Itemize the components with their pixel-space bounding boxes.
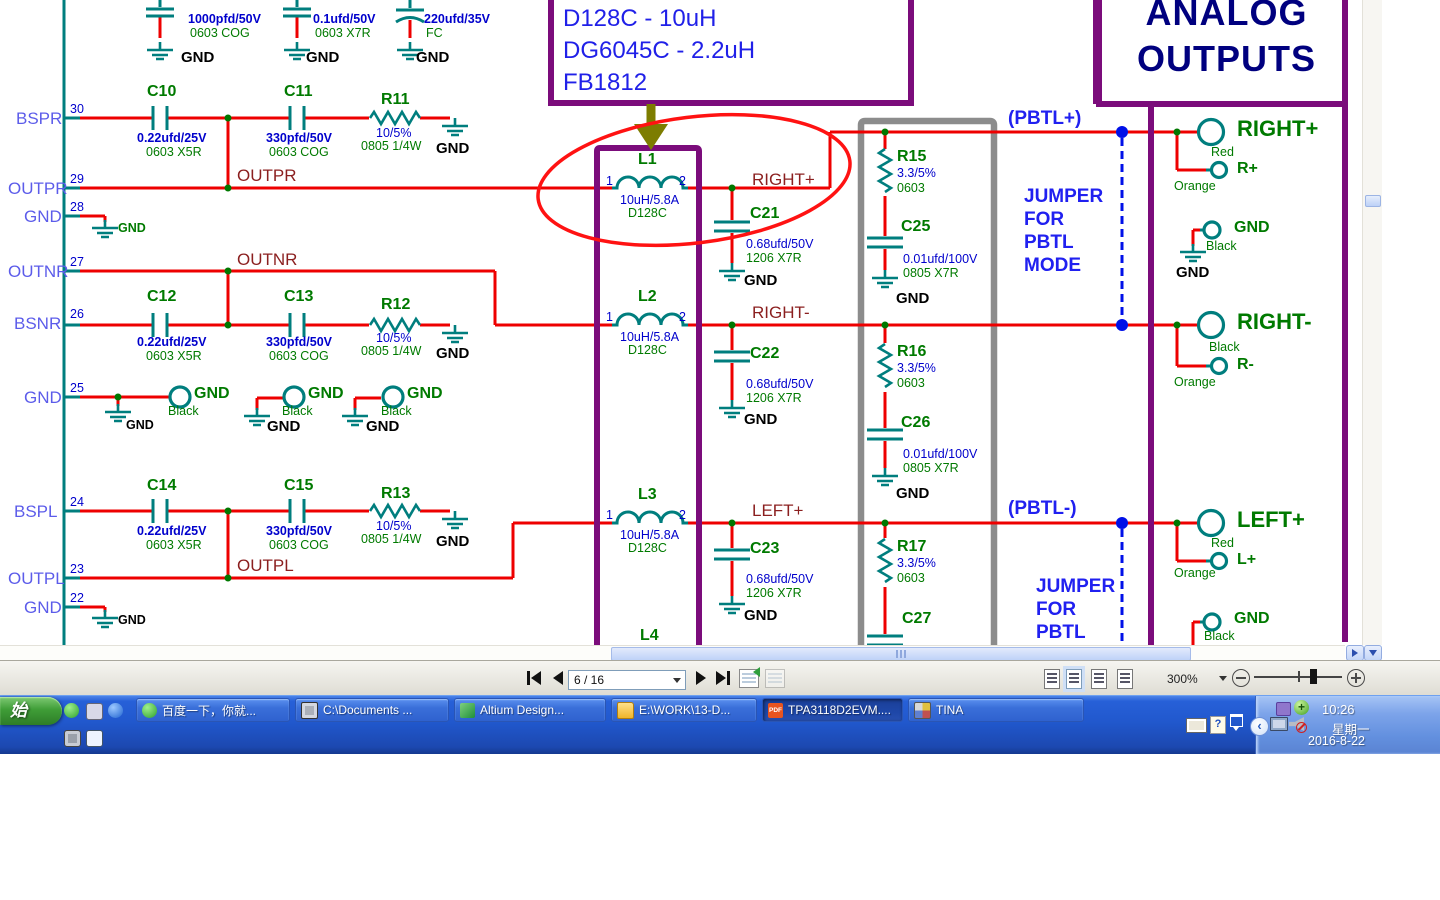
schematic-label: 0.22ufd/25V [137, 336, 206, 349]
snapshot-disabled-icon [765, 669, 785, 688]
schematic-label: D128C [628, 344, 667, 357]
schematic-label: 0603 [897, 572, 925, 585]
clock-time[interactable]: 10:26 [1322, 702, 1355, 717]
schematic-label: R11 [381, 92, 409, 109]
schematic-label: R12 [381, 297, 410, 314]
tray-green-plus-icon[interactable]: + [1294, 700, 1309, 715]
horizontal-scrollbar-thumb[interactable] [611, 647, 1191, 661]
taskbar-button[interactable]: Altium Design... [454, 698, 606, 722]
analog-outputs-box: ANALOG OUTPUTS [1096, 0, 1351, 104]
next-page-button[interactable] [692, 670, 710, 686]
schematic-label: R+ [1237, 161, 1258, 178]
schematic-label: GND [267, 419, 300, 435]
taskbar-button[interactable]: TINA [908, 698, 1084, 722]
previous-page-button[interactable] [549, 670, 567, 686]
schematic-label: JUMPER [1024, 187, 1103, 207]
schematic-label: 1206 X7R [746, 252, 802, 265]
taskbar-button-label: 百度一下，你就... [162, 702, 262, 719]
hide-icons-chevron-button[interactable]: ‹ [1250, 717, 1269, 736]
tray-app-icon[interactable] [1276, 702, 1291, 716]
zoom-slider-tick [1298, 671, 1300, 682]
schematic-label: GND [744, 608, 777, 624]
analog-outputs-title-line1: ANALOG [1146, 0, 1308, 36]
schematic-label: 1 [606, 311, 613, 324]
schematic-label: MODE [1024, 256, 1081, 276]
schematic-label: 0603 [897, 182, 925, 195]
taskbar-button[interactable]: 百度一下，你就... [136, 698, 290, 722]
scrollbar-grip [896, 650, 906, 658]
taskbar-button[interactable]: E:\WORK\13-D... [611, 698, 757, 722]
schematic-label: 0603 COG [269, 539, 329, 552]
schematic-label: D128C - 10uH [563, 6, 716, 31]
schematic-label: OUTNR [8, 263, 68, 281]
schematic-label: GND [194, 386, 230, 403]
tina-icon [914, 702, 931, 719]
schematic-label: C22 [750, 346, 779, 363]
schematic-label: Red [1211, 146, 1234, 159]
page-lines-icon [1120, 673, 1130, 684]
schematic-label: C26 [901, 415, 930, 432]
schematic-label: GND [744, 273, 777, 289]
language-bar-help-icon[interactable]: ? [1210, 716, 1226, 734]
schematic-label: R17 [897, 539, 926, 556]
schematic-label: 0.68ufd/50V [746, 378, 813, 391]
pbtl-dot [1116, 517, 1128, 529]
tray-network-monitor-icon[interactable] [1270, 717, 1288, 731]
schematic-label: 0.01ufd/100V [903, 253, 977, 266]
schematic-label: Orange [1174, 180, 1216, 193]
schematic-label: 0603 X5R [146, 146, 202, 159]
schematic-label: GND [1176, 265, 1209, 281]
zoom-dropdown-icon[interactable] [1219, 676, 1227, 681]
schematic-label: Black [1209, 341, 1240, 354]
taskbar: 始 百度一下，你就...C:\Documents ...Altium Desig… [0, 695, 1440, 754]
schematic-label: C21 [750, 206, 779, 223]
schematic-label: RIGHT- [1237, 310, 1312, 333]
schematic-label: 0805 1/4W [361, 345, 421, 358]
quicklaunch-chip-icon[interactable] [64, 730, 81, 747]
pdf-page: 1000pfd/50V0603 COGGND0.1ufd/50V0603 X7R… [0, 0, 1362, 645]
schematic-label: D128C [628, 207, 667, 220]
quicklaunch-ie-icon[interactable] [108, 703, 123, 718]
schematic-label: 0603 X7R [315, 27, 371, 40]
schematic-label: FC [426, 27, 443, 40]
schematic-label: PBTL [1024, 233, 1074, 253]
schematic-label: GND [118, 614, 146, 627]
page-lines-icon [1047, 673, 1057, 684]
schematic-label: 1 [606, 509, 613, 522]
zoom-slider-thumb[interactable] [1310, 669, 1317, 684]
schematic-label: OUTNR [237, 251, 297, 269]
schematic-label: (PBTL-) [1008, 499, 1077, 519]
continuous-facing-view-button[interactable] [1117, 669, 1133, 689]
taskbar-button[interactable]: C:\Documents ... [295, 698, 449, 722]
quicklaunch-calculator-icon[interactable] [86, 703, 103, 720]
schematic-label: 0.22ufd/25V [137, 132, 206, 145]
schematic-label: GND [407, 386, 443, 403]
schematic-label: GND [416, 50, 449, 66]
taskbar-button[interactable]: PDFTPA3118D2EVM.... [762, 698, 903, 722]
schematic-label: 3.3/5% [897, 167, 936, 180]
snapshot-rows [768, 673, 782, 683]
schematic-label: GND [24, 208, 62, 226]
schematic-label: LEFT+ [752, 502, 804, 520]
schematic-label: (PBTL+) [1008, 109, 1081, 129]
schematic-label: 25 [70, 382, 84, 395]
schematic-label: 0.01ufd/100V [903, 448, 977, 461]
single-page-view-button[interactable] [1044, 669, 1060, 689]
schematic-label: 330pfd/50V [266, 525, 332, 538]
schematic-label: BSPL [14, 503, 57, 521]
schematic-label: BSNR [14, 315, 61, 333]
schematic-label: GND [366, 419, 399, 435]
schematic-label: 0805 1/4W [361, 140, 421, 153]
schematic-label: 2 [679, 311, 686, 324]
schematic-label: Orange [1174, 567, 1216, 580]
clock-date: 2016-8-22 [1308, 734, 1365, 748]
schematic-label: 3.3/5% [897, 362, 936, 375]
start-button[interactable]: 始 [0, 697, 62, 725]
schematic-label: BSPR [16, 110, 62, 128]
schematic-label: Black [381, 405, 412, 418]
schematic-label: 0.1ufd/50V [313, 13, 376, 26]
page-indicator: 6 / 16 [574, 673, 604, 687]
snapshot-icon[interactable] [739, 669, 759, 688]
schematic-label: 24 [70, 496, 84, 509]
schematic-label: 2 [679, 175, 686, 188]
schematic-label: GND [896, 291, 929, 307]
schematic-label: 0.22ufd/25V [137, 525, 206, 538]
page-number-box[interactable]: 6 / 16 [568, 670, 686, 690]
right-arrow-icon [1352, 649, 1358, 657]
schematic-label: DG6045C - 2.2uH [563, 38, 755, 63]
schematic-label: 0.68ufd/50V [746, 573, 813, 586]
schematic-label: 23 [70, 563, 84, 576]
schematic-label: FB1812 [563, 70, 647, 95]
schematic-label: OUTPR [8, 180, 68, 198]
schematic-label: GND [1234, 611, 1270, 628]
schematic-label: GND [896, 486, 929, 502]
pdf-icon: PDF [768, 703, 783, 718]
schematic-label: GND [436, 534, 469, 550]
schematic-label: GND [436, 141, 469, 157]
taskbar-button-label: Altium Design... [480, 703, 570, 717]
horizontal-scrollbar[interactable] [0, 645, 1345, 661]
schematic-label: C25 [901, 219, 930, 236]
pbtl-dot [1116, 319, 1128, 331]
schematic-label: 29 [70, 173, 84, 186]
schematic-label: GND [24, 389, 62, 407]
quicklaunch-document-icon[interactable] [86, 730, 103, 747]
schematic-label: 330pfd/50V [266, 132, 332, 145]
last-page-button[interactable] [714, 670, 732, 686]
schematic-label: L1 [638, 152, 657, 169]
schematic-label: 28 [70, 201, 84, 214]
schematic-label: 220ufd/35V [424, 13, 490, 26]
schematic-label: TRIPLE FOOTPRINT PADS [560, 0, 859, 4]
minus-icon [1236, 677, 1246, 679]
schematic-label: RIGHT+ [752, 171, 815, 189]
schematic-label: RIGHT- [752, 304, 810, 322]
schematic-label: C15 [284, 478, 313, 495]
schematic-label: 0603 COG [269, 350, 329, 363]
taskbar-button-label: E:\WORK\13-D... [639, 703, 736, 717]
page-dropdown-icon[interactable] [673, 678, 681, 683]
down-arrow-icon [1369, 650, 1377, 656]
vertical-scrollbar-thumb[interactable] [1365, 195, 1381, 207]
schematic-label: Black [1206, 240, 1237, 253]
scroll-down-button[interactable] [1364, 645, 1382, 661]
schematic-label: GND [181, 50, 214, 66]
schematic-label: C27 [902, 611, 931, 628]
vertical-scrollbar[interactable] [1362, 0, 1382, 645]
chip-icon [301, 702, 318, 719]
schematic-label: 1000pfd/50V [188, 13, 261, 26]
analog-outputs-title-line2: OUTPUTS [1137, 36, 1316, 82]
schematic-label: OUTPL [8, 570, 65, 588]
schematic-label: 26 [70, 308, 84, 321]
tray-speaker-mute-badge [1296, 722, 1307, 733]
quicklaunch-ie-green-icon[interactable] [64, 703, 79, 718]
schematic-label: L2 [638, 289, 657, 306]
system-tray: + 10:26 ‹ 星期一 2016-8-22 [1255, 696, 1440, 754]
schematic-label: 0805 1/4W [361, 533, 421, 546]
schematic-label: GND [744, 412, 777, 428]
desktop: 1000pfd/50V0603 COGGND0.1ufd/50V0603 X7R… [0, 0, 1440, 900]
zoom-out-button[interactable] [1232, 669, 1250, 687]
schematic-label: 0603 COG [190, 27, 250, 40]
continuous-view-button[interactable] [1066, 669, 1082, 689]
schematic-label: 27 [70, 256, 84, 269]
schematic-label: OUTPL [237, 557, 294, 575]
schematic-label: GND [118, 222, 146, 235]
zoom-in-button[interactable] [1347, 669, 1365, 687]
first-page-button[interactable] [525, 670, 543, 686]
schematic-label: 30 [70, 103, 84, 116]
schematic-label: 2 [679, 509, 686, 522]
snapshot-arrow [753, 667, 760, 677]
schematic-label: JUMPER [1036, 577, 1115, 597]
schematic-label: RIGHT+ [1237, 117, 1318, 140]
schematic-label: D128C [628, 542, 667, 555]
inductor-column-outline [597, 148, 699, 645]
schematic-label: 330pfd/50V [266, 336, 332, 349]
schematic-label: C14 [147, 478, 176, 495]
schematic-label: R- [1237, 357, 1254, 374]
schematic-label: 0603 [897, 377, 925, 390]
schematic-label: 0603 X5R [146, 539, 202, 552]
schematic-label: 0805 X7R [903, 267, 959, 280]
schematic-label: GND [24, 599, 62, 617]
folder-icon [617, 702, 634, 719]
schematic-label: Black [282, 405, 313, 418]
schematic-label: C10 [147, 84, 176, 101]
schematic-label: GND [436, 346, 469, 362]
schematic-label: 1206 X7R [746, 587, 802, 600]
schematic-label: Red [1211, 537, 1234, 550]
language-bar-restore-icon[interactable] [1230, 714, 1243, 727]
schematic-label: 0805 X7R [903, 462, 959, 475]
schematic-label: 0603 COG [269, 146, 329, 159]
schematic-label: GND [308, 386, 344, 403]
schematic-label: 0603 X5R [146, 350, 202, 363]
schematic-label: R16 [897, 344, 926, 361]
schematic-label: R15 [897, 149, 926, 166]
schematic-label: C23 [750, 541, 779, 558]
schematic-label: GND [306, 50, 339, 66]
facing-view-button[interactable] [1091, 669, 1107, 689]
schematic-label: 1 [606, 175, 613, 188]
taskbar-button-label: TINA [936, 703, 969, 717]
schematic-label: Orange [1174, 376, 1216, 389]
page-lines-icon [1069, 673, 1079, 684]
schematic-label: 1206 X7R [746, 392, 802, 405]
schematic-label: PBTL [1036, 623, 1086, 643]
schematic-label: L+ [1237, 552, 1256, 569]
schematic-label: LEFT+ [1237, 508, 1305, 531]
taskbar-button-label: TPA3118D2EVM.... [788, 703, 897, 717]
schematic-label: GND [126, 419, 154, 432]
schematic-label: L4 [640, 628, 659, 645]
taskbar-button-label: C:\Documents ... [323, 703, 418, 717]
language-bar-options-icon[interactable] [1233, 727, 1239, 731]
zoom-level: 300% [1167, 672, 1198, 686]
plus-icon-v [1355, 673, 1357, 683]
schematic-label: FOR [1036, 600, 1076, 620]
pdf-bottom-toolbar: 6 / 16 300% [0, 660, 1440, 696]
schematic-label: Black [168, 405, 199, 418]
schematic-label: R13 [381, 486, 410, 503]
browser-green-icon [142, 703, 157, 718]
schematic-label: OUTPR [237, 167, 297, 185]
schematic-label: C12 [147, 289, 176, 306]
schematic-label: L3 [638, 487, 657, 504]
schematic-label: FOR [1024, 210, 1064, 230]
schematic-label: 3.3/5% [897, 557, 936, 570]
pbtl-dot [1116, 126, 1128, 138]
page-lines-icon [1094, 673, 1104, 684]
schematic-label: Black [1204, 630, 1235, 643]
language-bar-keyboard-icon[interactable] [1186, 718, 1207, 733]
altium-icon [460, 703, 475, 718]
schematic-label: C11 [284, 84, 312, 101]
schematic-label: GND [1234, 220, 1270, 237]
taskbar-buttons: 百度一下，你就...C:\Documents ...Altium Design.… [136, 698, 1084, 722]
schematic-label: C13 [284, 289, 313, 306]
scroll-right-button[interactable] [1346, 645, 1364, 661]
schematic-label: 0.68ufd/50V [746, 238, 813, 251]
schematic-label: 22 [70, 592, 84, 605]
